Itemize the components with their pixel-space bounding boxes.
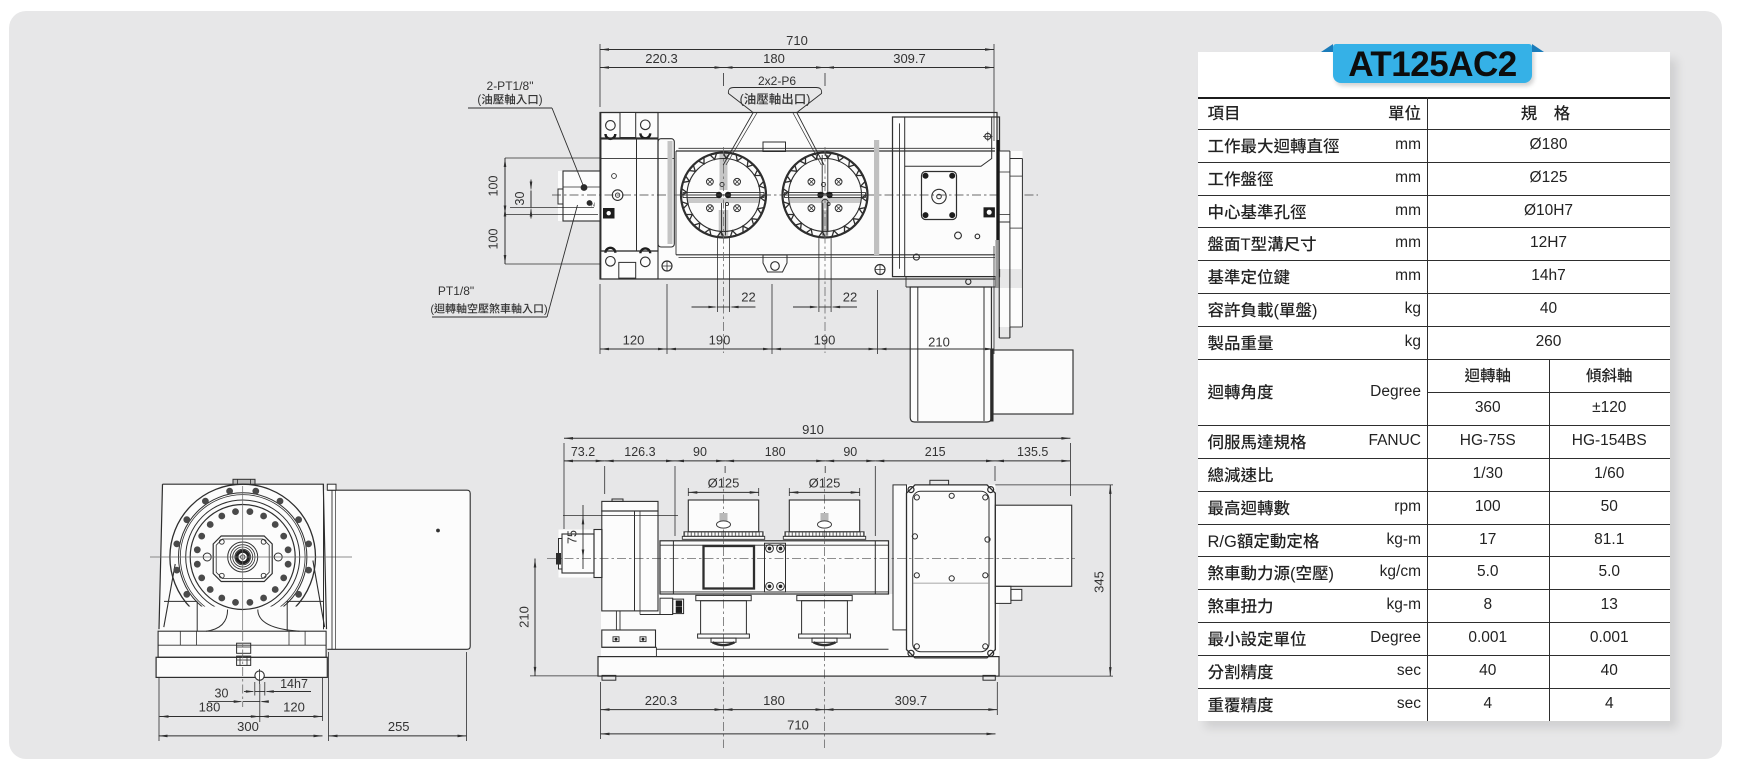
- svg-text:910: 910: [802, 422, 824, 437]
- svg-text:126.3: 126.3: [624, 445, 655, 459]
- svg-text:710: 710: [787, 718, 809, 733]
- svg-text:309.7: 309.7: [893, 51, 926, 66]
- svg-text:120: 120: [623, 333, 645, 348]
- svg-text:Ø125: Ø125: [708, 476, 740, 491]
- svg-text:(油壓軸出口): (油壓軸出口): [740, 89, 811, 108]
- svg-text:210: 210: [928, 335, 950, 350]
- svg-text:22: 22: [843, 290, 857, 305]
- svg-text:120: 120: [283, 700, 305, 715]
- svg-text:710: 710: [786, 33, 808, 48]
- svg-text:90: 90: [843, 445, 857, 459]
- svg-text:220.3: 220.3: [645, 693, 678, 708]
- svg-text:300: 300: [237, 719, 259, 734]
- svg-text:180: 180: [763, 693, 785, 708]
- svg-text:75: 75: [566, 530, 580, 544]
- svg-text:14h7: 14h7: [280, 677, 308, 691]
- svg-text:215: 215: [925, 445, 946, 459]
- svg-text:190: 190: [709, 333, 731, 348]
- svg-text:30: 30: [513, 192, 527, 206]
- svg-text:30: 30: [215, 687, 229, 701]
- svg-text:Ø125: Ø125: [809, 476, 841, 491]
- svg-text:190: 190: [814, 333, 836, 348]
- svg-text:22: 22: [741, 290, 755, 305]
- svg-text:100: 100: [487, 176, 501, 197]
- svg-text:180: 180: [763, 51, 785, 66]
- svg-text:(油壓軸入口): (油壓軸入口): [477, 92, 542, 108]
- svg-text:PT1/8": PT1/8": [438, 284, 474, 298]
- svg-text:210: 210: [517, 606, 532, 628]
- svg-text:135.5: 135.5: [1017, 445, 1048, 459]
- svg-text:180: 180: [765, 445, 786, 459]
- svg-text:(迴轉軸空壓煞車軸入口): (迴轉軸空壓煞車軸入口): [430, 301, 547, 317]
- svg-text:90: 90: [693, 445, 707, 459]
- svg-text:255: 255: [388, 719, 410, 734]
- svg-text:73.2: 73.2: [571, 445, 595, 459]
- svg-text:345: 345: [1092, 571, 1107, 593]
- svg-text:220.3: 220.3: [645, 51, 678, 66]
- svg-text:2x2-P6: 2x2-P6: [758, 74, 796, 88]
- svg-text:309.7: 309.7: [895, 693, 928, 708]
- svg-text:180: 180: [199, 700, 221, 715]
- svg-text:100: 100: [487, 229, 501, 250]
